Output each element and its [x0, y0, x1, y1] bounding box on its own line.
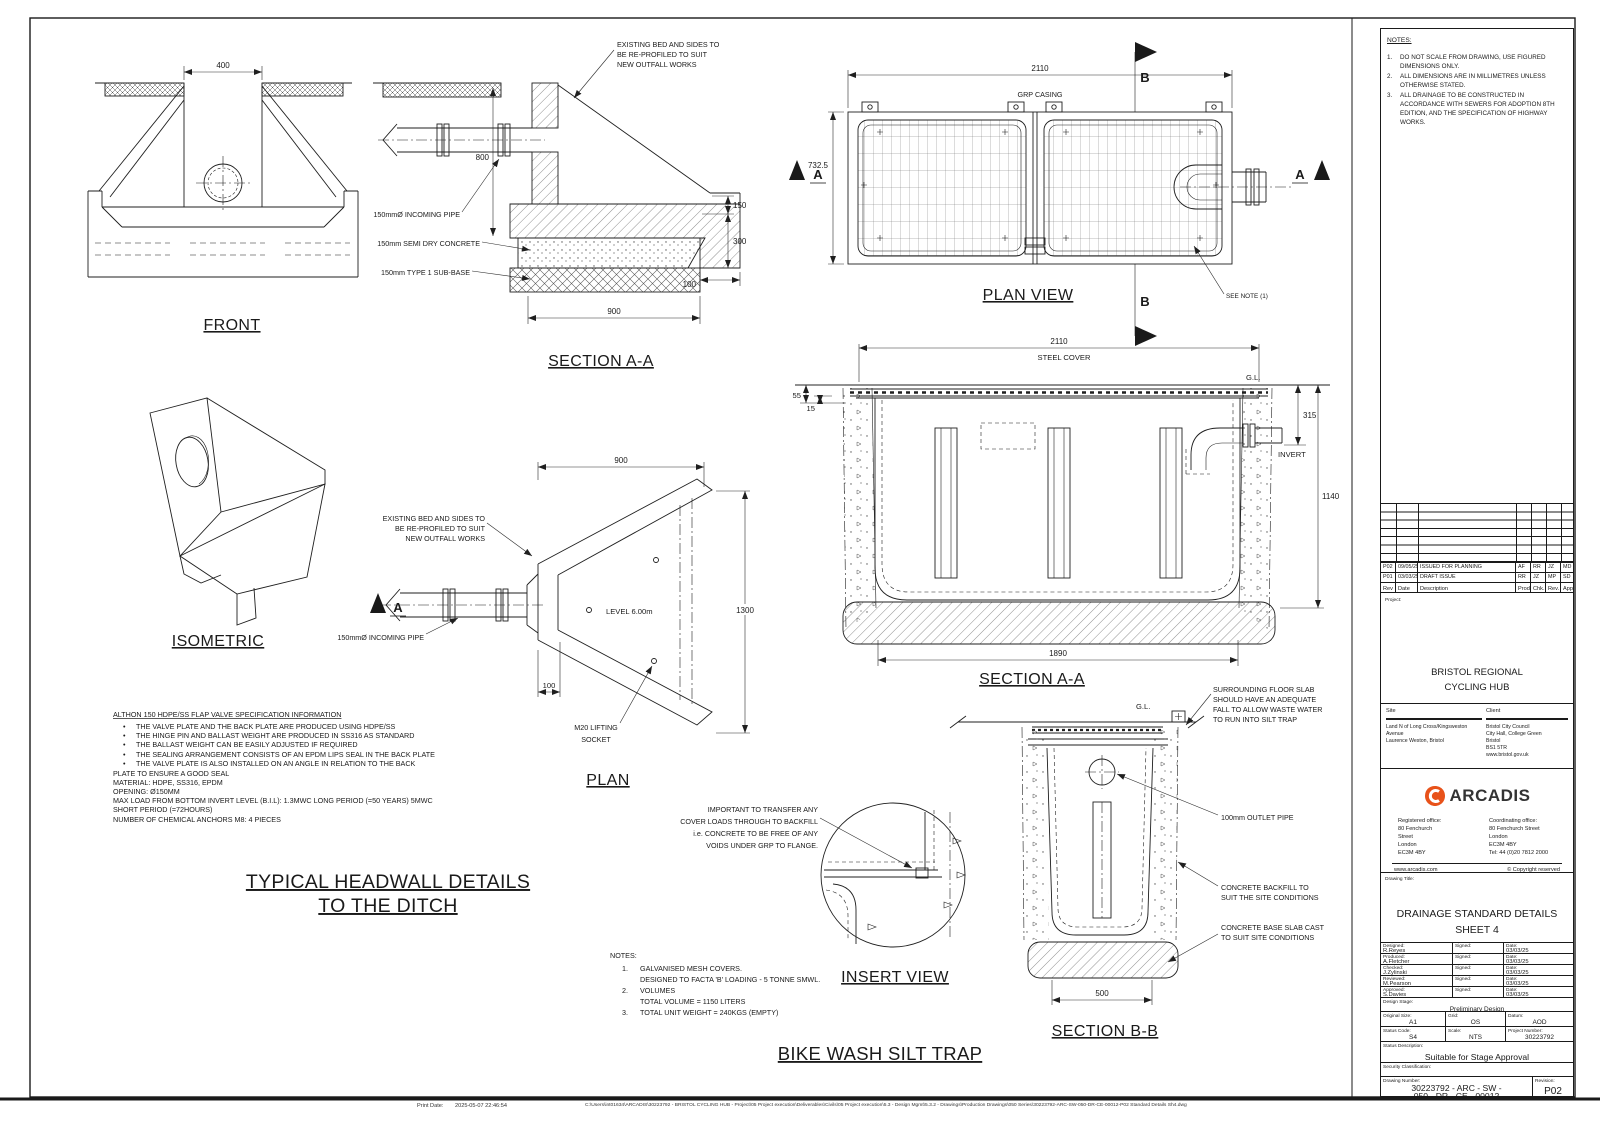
note-3-number: 3. — [622, 1008, 628, 1017]
datum-value: AOD — [1508, 1019, 1571, 1026]
note-3-line4: WORKS. — [1400, 119, 1426, 126]
dim-1300: 1300 — [736, 606, 754, 615]
section-marker-a-left: A — [813, 167, 823, 182]
see-note-label: SEE NOTE (1) — [1226, 293, 1268, 300]
hdr-rev2: Rev. — [1546, 583, 1561, 593]
note-3-number: 3. — [1387, 91, 1400, 127]
backfill-note-line1: CONCRETE BACKFILL TO — [1221, 883, 1309, 892]
coord-line3: EC3M 4BY — [1489, 841, 1568, 849]
status-description-box: Status Description: Suitable for Stage A… — [1381, 1042, 1573, 1063]
semi-dry-concrete-label: 150mm SEMI DRY CONCRETE — [377, 239, 480, 248]
revision-value: P02 — [1535, 1086, 1571, 1097]
ground-level-label: G.L. — [1246, 373, 1260, 382]
althon-bullet-1: THE VALVE PLATE AND THE BACK PLATE ARE P… — [136, 722, 396, 731]
floor-slab-note-line3: FALL TO ALLOW WASTE WATER — [1213, 705, 1322, 714]
scale-value: NTS — [1448, 1034, 1503, 1041]
dim-500: 500 — [1095, 989, 1109, 998]
hdr-rev: Rev — [1381, 583, 1396, 593]
insert-view-title: INSERT VIEW — [841, 969, 949, 986]
dim-900: 900 — [614, 456, 628, 465]
rev-prod: RR — [1516, 573, 1531, 582]
signed-label: Signed: — [1455, 943, 1501, 949]
note-item-1: 1. DO NOT SCALE FROM DRAWING, USE FIGURE… — [1387, 53, 1567, 71]
section-marker-a-right: A — [1295, 167, 1305, 182]
section-bb-title: SECTION B-B — [1052, 1023, 1159, 1040]
althon-bullet-3: THE BALLAST WEIGHT CAN BE EASILY ADJUSTE… — [136, 740, 358, 749]
grid-label: Grid: — [1448, 1014, 1458, 1019]
ground-level-label: G.L. — [1136, 702, 1150, 711]
client-line1: Bristol City Council — [1486, 724, 1568, 731]
dim-900: 900 — [607, 307, 621, 316]
reg-line1: 80 Fenchurch — [1398, 825, 1477, 833]
section-aa-top-linework — [373, 83, 740, 292]
reg-line4: EC3M 4BY — [1398, 849, 1477, 857]
section-aa-top-title: SECTION A-A — [548, 353, 654, 370]
revision-label: Revision: — [1535, 1079, 1555, 1084]
client-line2: City Hall, College Green — [1486, 731, 1568, 738]
note-2-line2: OTHERWISE STATED. — [1400, 82, 1465, 89]
rev-chk: JZ — [1531, 573, 1546, 582]
arcadis-box: ARCADIS Registered office: 80 Fenchurch … — [1381, 769, 1573, 873]
front-dim-400: 400 — [216, 61, 230, 70]
scale-label: Scale: — [1448, 1029, 1461, 1034]
isometric-title: ISOMETRIC — [172, 633, 265, 650]
coordinating-office-label: Coordinating office: — [1489, 817, 1568, 825]
project-box: Project: BRISTOL REGIONAL CYCLING HUB — [1381, 593, 1573, 704]
client-label: Client — [1486, 708, 1568, 715]
dim-2110: 2110 — [1031, 64, 1049, 73]
note-1-line2: DIMENSIONS ONLY. — [1400, 63, 1459, 70]
reprofile-note-line2: BE RE-PROFILED TO SUIT — [617, 50, 708, 59]
headwall-title-line1: TYPICAL HEADWALL DETAILS — [246, 871, 530, 893]
print-date-value: 2025-05-07 22:46:54 — [455, 1103, 507, 1109]
project-label: Project: — [1385, 598, 1401, 603]
dim-150: 150 — [733, 201, 747, 210]
dim-15: 15 — [807, 404, 815, 413]
reg-line2: Street — [1398, 833, 1477, 841]
drawing-title-line1: DRAINAGE STANDARD DETAILS — [1385, 906, 1569, 922]
note-2-number: 2. — [1387, 72, 1400, 90]
note-2-number: 2. — [622, 986, 628, 995]
rev-id: P02 — [1381, 563, 1396, 572]
client-line3: Bristol — [1486, 738, 1568, 745]
status-scale-pn-row: Status Code:S4 Scale:NTS Project Number:… — [1381, 1027, 1573, 1042]
reprofile-note-line3: NEW OUTFALL WORKS — [617, 60, 697, 69]
rev-id: P01 — [1381, 573, 1396, 582]
design-stage-label: Design Stage: — [1383, 1000, 1413, 1005]
lifting-lugs — [862, 102, 1222, 112]
arcadis-wordmark: ARCADIS — [1450, 786, 1531, 806]
althon-line-4: MAX LOAD FROM BOTTOM INVERT LEVEL (B.I.L… — [113, 796, 433, 805]
reprofile-note-line1: EXISTING BED AND SIDES TO — [617, 40, 720, 49]
reprofile-note-line2: BE RE-PROFILED TO SUIT — [395, 524, 486, 533]
m20-label-line2: SOCKET — [581, 735, 611, 744]
bottom-notes-block: NOTES: 1. GALVANISED MESH COVERS. DESIGN… — [610, 951, 820, 1017]
client-column: Client Bristol City Council City Hall, C… — [1486, 708, 1568, 764]
hdr-prod: Prod — [1516, 583, 1531, 593]
note-3-line1: ALL DRAINAGE TO BE CONSTRUCTED IN — [1400, 92, 1524, 99]
project-name-line2: CYCLING HUB — [1385, 680, 1569, 695]
althon-bullet-2: THE HINGE PIN AND BALLAST WEIGHT ARE PRO… — [136, 731, 414, 740]
insert-view-linework — [821, 803, 965, 947]
baffles — [935, 428, 1182, 578]
site-column: Site Land N of Long Cross/Kingsweston Av… — [1386, 708, 1486, 764]
original-size-label: Original Size: — [1383, 1014, 1412, 1019]
dim-2110: 2110 — [1050, 337, 1068, 346]
status-description-value: Suitable for Stage Approval — [1383, 1052, 1571, 1062]
base-slab-note-line1: CONCRETE BASE SLAB CAST — [1221, 923, 1325, 932]
revision-empty-rows — [1381, 504, 1573, 562]
note-2-line1: ALL DIMENSIONS ARE IN MILLIMETRES UNLESS — [1400, 73, 1546, 80]
hdr-app: App. — [1561, 583, 1573, 593]
section-aa-mid-linework — [795, 385, 1330, 644]
section-aa-mid-title: SECTION A-A — [979, 671, 1085, 688]
outlet-pipe-label: 100mm OUTLET PIPE — [1221, 813, 1294, 822]
coord-line2: London — [1489, 833, 1568, 841]
coordinating-office: Coordinating office: 80 Fenchurch Street… — [1477, 817, 1568, 857]
hdr-date: Date — [1396, 583, 1418, 593]
security-classification-label: Security Classification: — [1383, 1065, 1431, 1070]
insert-note-line3: i.e. CONCRETE TO BE FREE OF ANY — [693, 829, 818, 838]
signed-label: Signed: — [1455, 965, 1501, 971]
drawing-number-line2: 050 - DR - CE - 00012 — [1383, 1092, 1530, 1098]
althon-bullet-4: THE SEALING ARRANGEMENT CONSISTS OF AN E… — [136, 750, 435, 759]
dim-100: 100 — [543, 681, 556, 690]
note-1-line1: DO NOT SCALE FROM DRAWING, USE FIGURED — [1400, 54, 1546, 61]
plan-title: PLAN — [586, 772, 629, 789]
althon-line-1: PLATE TO ENSURE A GOOD SEAL — [113, 769, 229, 778]
client-line4: BS1 5TR — [1486, 745, 1568, 752]
insert-note-line4: VOIDS UNDER GRP TO FLANGE. — [706, 841, 818, 850]
insert-view-leader — [820, 818, 912, 868]
file-path: C:\Users\int01634\ARCADIS\30223792 - BRI… — [585, 1103, 1187, 1108]
status-description-label: Status Description: — [1383, 1044, 1423, 1049]
registered-office: Registered office: 80 Fenchurch Street L… — [1386, 817, 1477, 857]
section-marker-b-top: B — [1140, 70, 1149, 85]
coord-line4: Tel: 44 (0)20 7812 2000 — [1489, 849, 1568, 857]
rev-description: ISSUED FOR PLANNING — [1418, 563, 1516, 572]
bullet: • — [123, 722, 126, 731]
sub-base-label: 150mm TYPE 1 SUB-BASE — [381, 268, 470, 277]
bullet: • — [123, 759, 126, 768]
front-title: FRONT — [203, 317, 260, 334]
level-label: LEVEL 6.00m — [606, 607, 653, 616]
reprofile-note-line3: NEW OUTFALL WORKS — [405, 534, 485, 543]
drawing-number-box: Drawing Number: 30223792 - ARC - SW - 05… — [1381, 1077, 1573, 1098]
size-grid-datum-row: Original Size:A1 Grid:OS Datum:AOD — [1381, 1012, 1573, 1027]
hdr-description: Description — [1418, 583, 1516, 593]
bullet: • — [123, 731, 126, 740]
signed-label: Signed: — [1455, 987, 1501, 993]
althon-spec-block: ALTHON 150 HDPE/SS FLAP VALVE SPECIFICAT… — [113, 710, 435, 824]
main-title: BIKE WASH SILT TRAP — [778, 1043, 982, 1064]
plan-view-title: PLAN VIEW — [983, 287, 1074, 304]
drawing-canvas: 400 FRONT EXISTING BED AND SIDES TO BE R… — [0, 0, 1600, 1130]
note-item-2: 2. ALL DIMENSIONS ARE IN MILLIMETRES UNL… — [1387, 72, 1567, 90]
headwall-title-line2: TO THE DITCH — [318, 895, 457, 917]
althon-line-2: MATERIAL: HDPE, SS316, EPDM — [113, 778, 223, 787]
steel-cover-label: STEEL COVER — [1038, 353, 1091, 362]
insert-view-text: IMPORTANT TO TRANSFER ANY COVER LOADS TH… — [680, 805, 949, 986]
floor-slab-note-line2: SHOULD HAVE AN ADEQUATE — [1213, 695, 1316, 704]
rev-description: DRAFT ISSUE — [1418, 573, 1516, 582]
rev-date: 09/05/25 — [1396, 563, 1418, 572]
sheet-frame — [0, 18, 1600, 1099]
note-item-3: 3. ALL DRAINAGE TO BE CONSTRUCTED IN ACC… — [1387, 91, 1567, 127]
drawing-sheet: 400 FRONT EXISTING BED AND SIDES TO BE R… — [0, 0, 1600, 1130]
signoff-row-produced: Produced:A.Fletcher Signed: Date:03/03/2… — [1381, 954, 1573, 965]
floor-slab-note-line4: TO RUN INTO SILT TRAP — [1213, 715, 1297, 724]
grp-casing-label: GRP CASING — [1018, 90, 1063, 99]
note-1-text-b: DESIGNED TO FACTA 'B' LOADING - 5 TONNE … — [640, 975, 820, 984]
client-rule — [1486, 718, 1568, 720]
coord-line1: 80 Fenchurch Street — [1489, 825, 1568, 833]
revision-header-row: Rev Date Description Prod Chk. Rev. App. — [1381, 582, 1573, 593]
rev-prod: AF — [1516, 563, 1531, 572]
arcadis-logo: ARCADIS — [1386, 785, 1568, 807]
rev-app: SD — [1561, 573, 1573, 582]
signed-label: Signed: — [1455, 976, 1501, 982]
note-1-number: 1. — [1387, 53, 1400, 71]
backfill-note-line2: SUIT THE SITE CONDITIONS — [1221, 893, 1319, 902]
note-2-text: VOLUMES — [640, 986, 675, 995]
section-bb-linework — [950, 711, 1204, 978]
rev-date: 03/03/25 — [1396, 573, 1418, 582]
althon-line-3: OPENING: Ø150MM — [113, 787, 180, 796]
project-number-value: 30223792 — [1508, 1034, 1571, 1041]
notes-heading: NOTES: — [1387, 37, 1567, 44]
title-block: NOTES: 1. DO NOT SCALE FROM DRAWING, USE… — [1380, 28, 1574, 1097]
status-code-label: Status Code: — [1383, 1029, 1411, 1034]
arcadis-logo-icon — [1424, 785, 1446, 807]
althon-title: ALTHON 150 HDPE/SS FLAP VALVE SPECIFICAT… — [113, 710, 341, 719]
section-marker-b-bottom: B — [1140, 294, 1149, 309]
titleblock-notes: NOTES: 1. DO NOT SCALE FROM DRAWING, USE… — [1381, 29, 1573, 504]
isometric-text: ISOMETRIC — [172, 633, 265, 650]
site-rule — [1386, 718, 1482, 720]
althon-line-6: NUMBER OF CHEMICAL ANCHORS M8: 4 PIECES — [113, 815, 281, 824]
drawing-title-box: Drawing Title: DRAINAGE STANDARD DETAILS… — [1381, 873, 1573, 943]
signoff-row-checked: Checked:J.Zylinski Signed: Date:03/03/25 — [1381, 965, 1573, 976]
security-classification-box: Security Classification: — [1381, 1063, 1573, 1077]
invert-label: INVERT — [1278, 450, 1306, 459]
print-date-label: Print Date: — [417, 1103, 443, 1109]
drawing-title-line2: SHEET 4 — [1385, 922, 1569, 938]
front-view-text: 400 FRONT — [203, 61, 260, 334]
plan-headwall-dims — [426, 462, 750, 733]
notes-title: NOTES: — [610, 951, 637, 960]
note-1-text: GALVANISED MESH COVERS. — [640, 964, 742, 973]
note-3-text: TOTAL UNIT WEIGHT = 240KGS (EMPTY) — [640, 1008, 778, 1017]
rev-chk: RR — [1531, 563, 1546, 572]
dim-800: 800 — [476, 153, 490, 162]
signed-label: Signed: — [1455, 954, 1501, 960]
grid-value: OS — [1448, 1019, 1503, 1026]
drawing-title-label: Drawing Title: — [1385, 877, 1414, 882]
signoff-table: Designed:R.Reyes Signed: Date:03/03/25 P… — [1381, 943, 1573, 998]
rev-app: MD — [1561, 563, 1573, 572]
revision-table: P02 09/05/25 ISSUED FOR PLANNING AF RR J… — [1381, 504, 1573, 593]
bullet: • — [123, 740, 126, 749]
dim-1140: 1140 — [1322, 492, 1340, 501]
site-client-box: Site Land N of Long Cross/Kingsweston Av… — [1381, 704, 1573, 769]
note-3-line3: EDITION, AND THE SPECIFICATION OF HIGHWA… — [1400, 110, 1547, 117]
reprofile-note-line1: EXISTING BED AND SIDES TO — [383, 514, 486, 523]
design-stage-box: Design Stage: Preliminary Design — [1381, 998, 1573, 1012]
insert-note-line1: IMPORTANT TO TRANSFER ANY — [708, 805, 818, 814]
project-name-line1: BRISTOL REGIONAL — [1385, 665, 1569, 680]
datum-label: Datum: — [1508, 1014, 1523, 1019]
althon-line-5: SHORT PERIOD (=72HOURS) — [113, 805, 212, 814]
site-label: Site — [1386, 708, 1482, 715]
note-1-number: 1. — [622, 964, 628, 973]
dim-315: 315 — [1303, 411, 1317, 420]
status-code-value: S4 — [1383, 1034, 1443, 1041]
insert-note-line2: COVER LOADS THROUGH TO BACKFILL — [680, 817, 818, 826]
bullet: • — [123, 750, 126, 759]
hdr-chk: Chk. — [1531, 583, 1546, 593]
dim-1890: 1890 — [1049, 649, 1067, 658]
floor-slab-note-line1: SURROUNDING FLOOR SLAB — [1213, 685, 1315, 694]
site-line2: Laurence Weston, Bristol — [1386, 738, 1482, 745]
incoming-pipe-label: 150mmØ INCOMING PIPE — [337, 633, 424, 642]
signoff-row-reviewed: Reviewed:M.Pearson Signed: Date:03/03/25 — [1381, 976, 1573, 987]
section-marker-a: A — [393, 600, 403, 615]
original-size-value: A1 — [1383, 1019, 1443, 1026]
reg-line3: London — [1398, 841, 1477, 849]
signoff-row-designed: Designed:R.Reyes Signed: Date:03/03/25 — [1381, 943, 1573, 954]
althon-bullet-5: THE VALVE PLATE IS ALSO INSTALLED ON AN … — [136, 759, 416, 768]
m20-label-line1: M20 LIFTING — [574, 723, 618, 732]
dim-300: 300 — [733, 237, 747, 246]
base-slab-note-line2: TO SUIT SITE CONDITIONS — [1221, 933, 1314, 942]
note-3-line2: ACCORDANCE WITH SEWERS FOR ADOPTION 8TH — [1400, 101, 1555, 108]
isometric-linework — [150, 398, 325, 625]
note-2-text-b: TOTAL VOLUME = 1150 LITERS — [640, 997, 746, 1006]
signoff-row-approved: Approved:S.Davies Signed: Date:03/03/25 — [1381, 987, 1573, 998]
revision-row-p02: P02 09/05/25 ISSUED FOR PLANNING AF RR J… — [1381, 562, 1573, 572]
registered-office-label: Registered office: — [1398, 817, 1477, 825]
dim-100: 100 — [683, 280, 697, 289]
revision-row-p01: P01 03/03/25 DRAFT ISSUE RR JZ MP SD — [1381, 572, 1573, 582]
site-line1: Land N of Long Cross/Kingsweston Avenue — [1386, 724, 1482, 738]
big-titles: TYPICAL HEADWALL DETAILS TO THE DITCH BI… — [246, 871, 982, 1064]
dim-55: 55 — [793, 391, 801, 400]
rev-rev: JZ — [1546, 563, 1561, 572]
rev-rev: MP — [1546, 573, 1561, 582]
incoming-pipe-label: 150mmØ INCOMING PIPE — [373, 210, 460, 219]
front-view-linework — [88, 83, 358, 277]
client-line5: www.bristol.gov.uk — [1486, 752, 1568, 759]
